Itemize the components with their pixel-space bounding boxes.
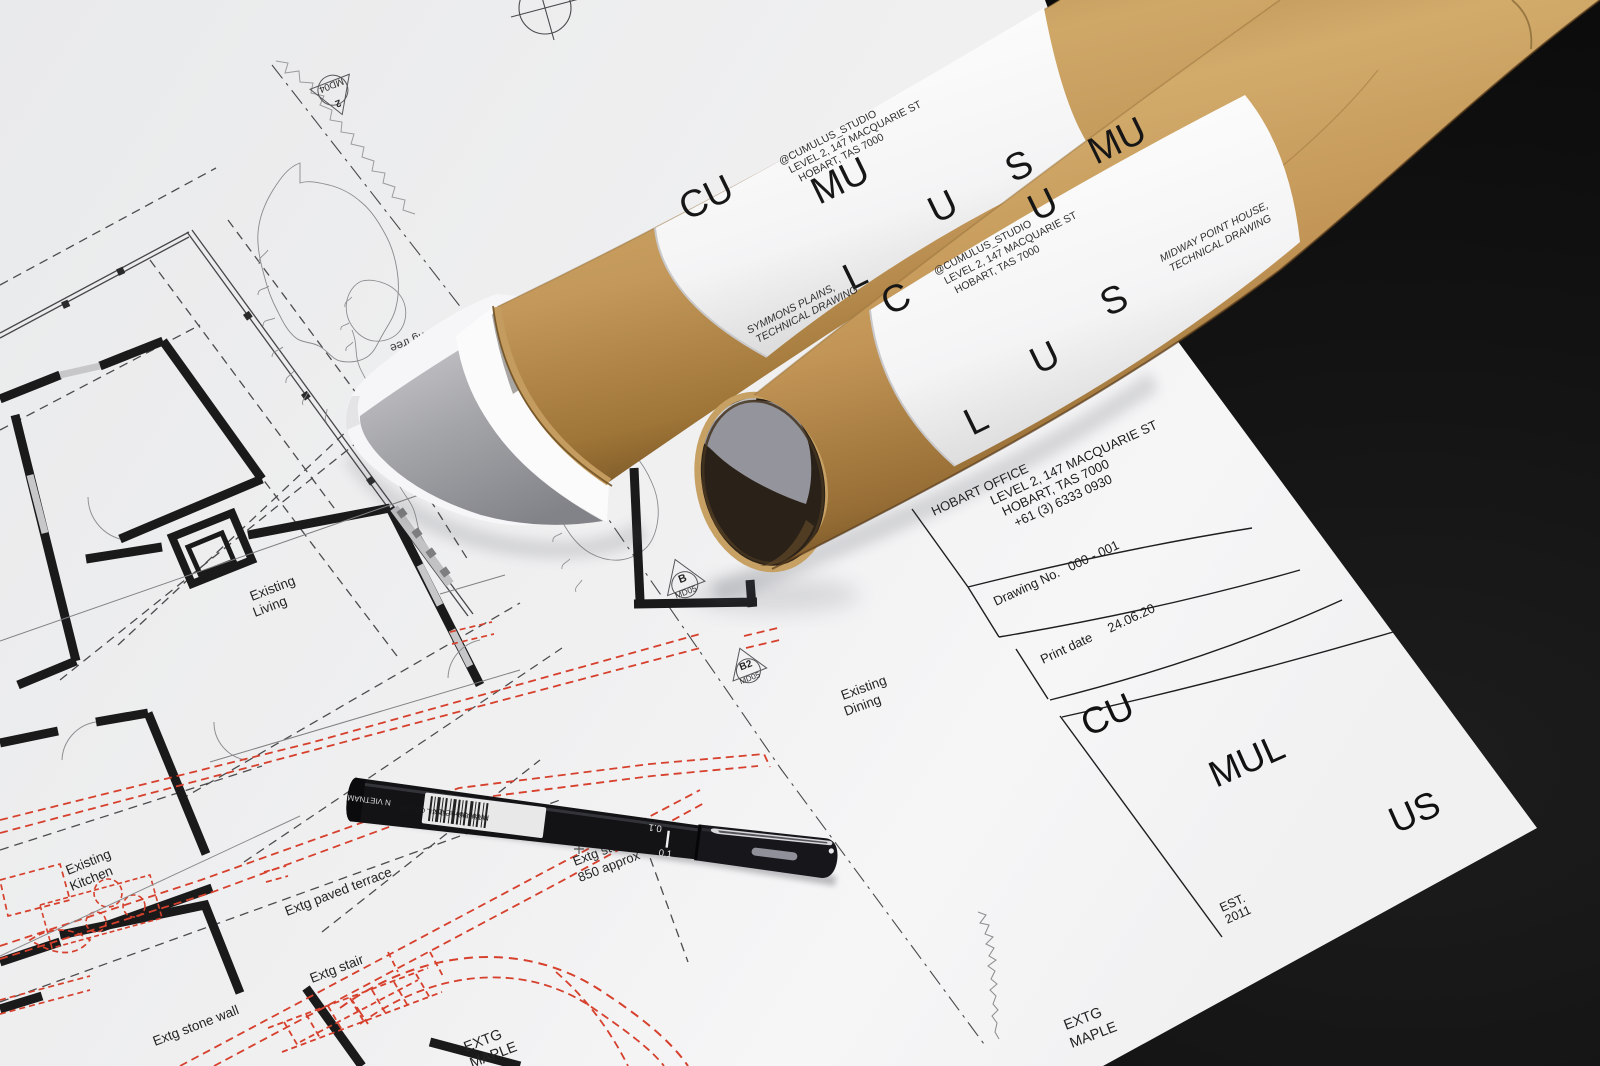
svg-text:0.1: 0.1 [648, 821, 662, 834]
svg-text:0.1: 0.1 [658, 848, 672, 861]
